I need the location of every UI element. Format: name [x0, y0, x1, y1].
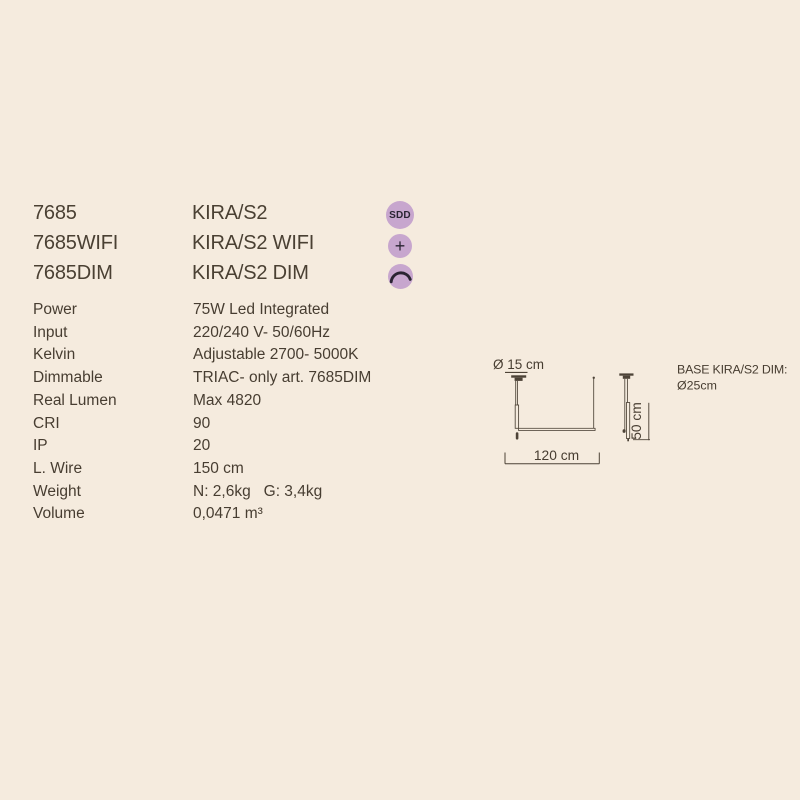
canopy-diameter-label: Ø 15 cm [493, 357, 544, 372]
technical-drawing: Ø 15 cm 120 cm [480, 350, 790, 475]
spec-label: Power [33, 299, 193, 322]
product-row: 7685WIFI KIRA/S2 WIFI [33, 228, 362, 258]
height-dimension-label: 50 cm [629, 402, 644, 440]
spec-row: Power 75W Led Integrated [33, 299, 371, 322]
dimmer-curve-icon [388, 264, 413, 289]
spec-value: 0,0471 m³ [193, 503, 263, 526]
spec-value: N: 2,6kg G: 3,4kg [193, 481, 322, 504]
width-dimension-label: 120 cm [534, 448, 579, 463]
product-row: 7685 KIRA/S2 [33, 198, 362, 228]
spec-label: Input [33, 322, 193, 345]
spec-label: Kelvin [33, 344, 193, 367]
product-code: 7685WIFI [33, 232, 192, 255]
spec-row: Dimmable TRIAC- only art. 7685DIM [33, 367, 371, 390]
spec-sheet-page: 7685 KIRA/S2 7685WIFI KIRA/S2 WIFI 7685D… [0, 0, 800, 800]
product-row: 7685DIM KIRA/S2 DIM [33, 258, 362, 288]
spec-row: IP 20 [33, 435, 371, 458]
side-bar-end-dot [623, 429, 626, 433]
side-canopy-box [623, 376, 630, 379]
front-bottom-nub [516, 432, 519, 439]
product-name: KIRA/S2 DIM [192, 262, 362, 285]
spec-row: Volume 0,0471 m³ [33, 503, 371, 526]
spec-value: 90 [193, 413, 210, 436]
spec-row: Real Lumen Max 4820 [33, 390, 371, 413]
spec-table: Power 75W Led Integrated Input 220/240 V… [33, 299, 371, 526]
product-model-list: 7685 KIRA/S2 7685WIFI KIRA/S2 WIFI 7685D… [33, 198, 362, 288]
spec-label: Weight [33, 481, 193, 504]
spec-value: Adjustable 2700- 5000K [193, 344, 358, 367]
spec-row: CRI 90 [33, 413, 371, 436]
spec-value: 20 [193, 435, 210, 458]
spec-label: Dimmable [33, 367, 193, 390]
front-horizontal-bar [519, 428, 596, 430]
base-note-line2: Ø25cm [677, 379, 717, 393]
spec-value: 75W Led Integrated [193, 299, 329, 322]
spec-value: 220/240 V- 50/60Hz [193, 322, 330, 345]
spec-value: 150 cm [193, 458, 244, 481]
base-note-line1: BASE KIRA/S2 DIM: [677, 363, 787, 377]
spec-label: CRI [33, 413, 193, 436]
spec-label: Volume [33, 503, 193, 526]
spec-value: TRIAC- only art. 7685DIM [193, 367, 371, 390]
plus-badge-icon: + [388, 234, 412, 258]
spec-row: Weight N: 2,6kg G: 3,4kg [33, 481, 371, 504]
product-code: 7685 [33, 202, 192, 225]
sdd-badge-label: SDD [389, 210, 411, 221]
product-name: KIRA/S2 WIFI [192, 232, 362, 255]
side-canopy-plate [619, 373, 633, 375]
spec-label: Real Lumen [33, 390, 193, 413]
spec-row: Kelvin Adjustable 2700- 5000K [33, 344, 371, 367]
front-rod-tube [515, 405, 518, 428]
dimmer-curve-glyph [388, 264, 413, 289]
spec-value: Max 4820 [193, 390, 261, 413]
product-code: 7685DIM [33, 262, 192, 285]
spec-row: Input 220/240 V- 50/60Hz [33, 322, 371, 345]
front-canopy-plate [511, 375, 526, 377]
dimension-diagram: Ø 15 cm 120 cm [480, 350, 790, 475]
spec-label: L. Wire [33, 458, 193, 481]
product-name: KIRA/S2 [192, 202, 362, 225]
front-canopy-box [515, 378, 523, 381]
spec-row: L. Wire 150 cm [33, 458, 371, 481]
spec-label: IP [33, 435, 193, 458]
sdd-badge-icon: SDD [386, 201, 414, 229]
plus-badge-label: + [395, 234, 406, 258]
